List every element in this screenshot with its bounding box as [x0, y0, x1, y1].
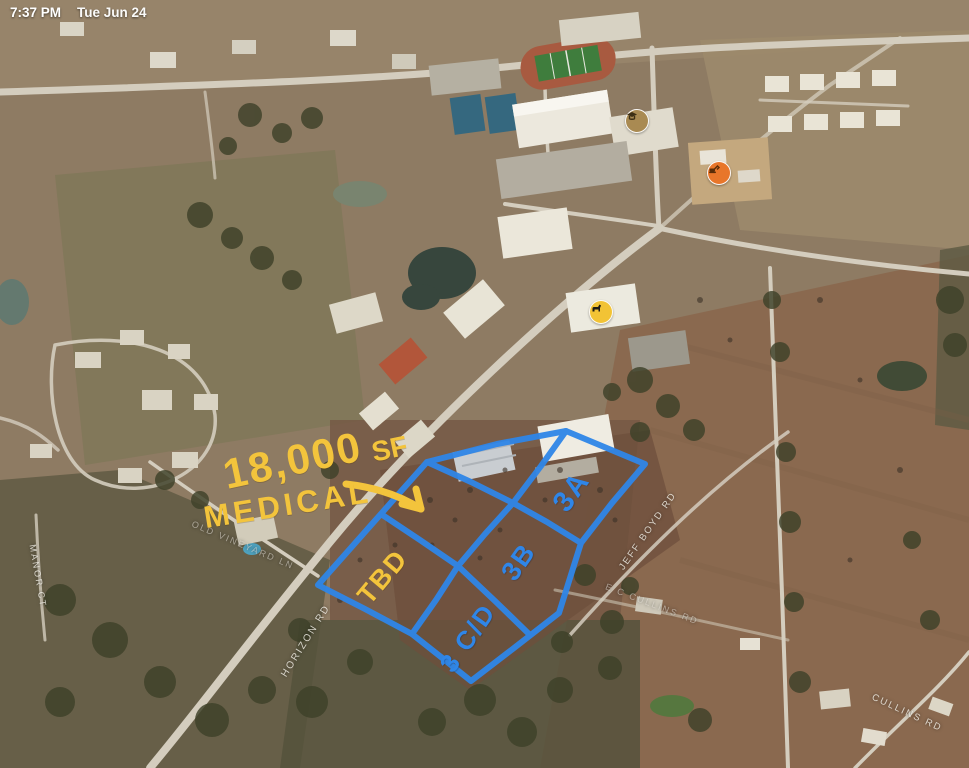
status-time: 7:37 PM [10, 5, 61, 20]
google-earth-view[interactable]: 7:37 PM Tue Jun 24 OLD VINEYARD LN HORIZ… [0, 0, 969, 768]
status-date: Tue Jun 24 [77, 5, 147, 20]
lot-outline-annotations [0, 0, 969, 768]
status-bar: 7:37 PM Tue Jun 24 [10, 5, 147, 20]
